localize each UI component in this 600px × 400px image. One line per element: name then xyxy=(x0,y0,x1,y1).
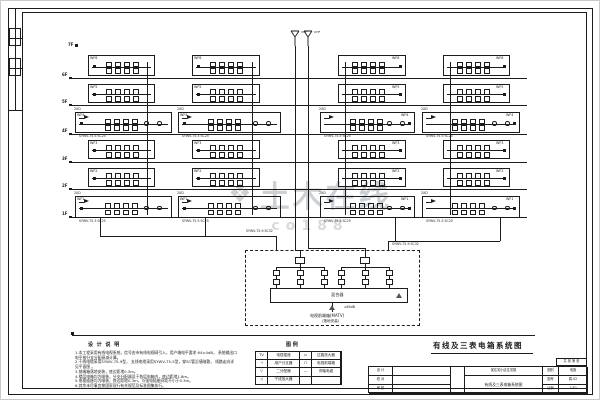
legend-symbol: TV xyxy=(256,352,268,360)
amplifier-icon xyxy=(187,199,192,203)
drawing-title: 有线及三表电箱系统图 xyxy=(433,342,523,350)
amplifier-label: 2XD xyxy=(319,192,326,195)
tv-outlet-icon xyxy=(132,119,138,132)
panel-label: WF2 xyxy=(392,170,399,173)
tv-outlet-icon xyxy=(466,62,472,75)
amp-in-line xyxy=(79,118,84,119)
tv-outlet-icon xyxy=(370,173,376,186)
tv-outlet-icon xyxy=(475,89,481,102)
panel-bus-line xyxy=(92,67,151,68)
floor-label: 6F xyxy=(62,73,68,77)
tap-icon xyxy=(408,122,411,125)
floor-tick xyxy=(69,77,72,80)
floor-label: 4F xyxy=(62,129,68,133)
tv-outlet-icon xyxy=(359,203,365,216)
tv-outlet-icon xyxy=(379,62,385,75)
tv-outlet-icon xyxy=(359,119,365,132)
tv-outlet-icon xyxy=(219,89,225,102)
tap-icon xyxy=(503,65,506,68)
notes-body: 1.本工程采用有线电视系统，信号由市有线电视网引入，用户端电平要求 64±4dB… xyxy=(75,351,237,389)
legend-symbol xyxy=(300,377,312,385)
panel-label: WF5 xyxy=(496,86,503,89)
splitter-circle-icon xyxy=(253,206,258,211)
tv-outlet-icon xyxy=(210,89,216,102)
tv-outlet-icon xyxy=(379,145,385,158)
floor-bus-line xyxy=(70,78,527,79)
tv-outlet-icon xyxy=(124,62,130,75)
mixer-triangle-icon xyxy=(396,293,402,298)
tv-outlet-icon xyxy=(105,203,111,216)
tap-icon xyxy=(183,122,186,125)
antenna-icon xyxy=(303,30,313,46)
tv-outlet-icon xyxy=(370,89,376,102)
notes-header: 设 计 说 明 xyxy=(88,343,120,348)
tv-outlet-icon xyxy=(114,119,120,132)
tv-outlet-icon xyxy=(228,62,234,75)
tap-icon xyxy=(93,177,96,180)
tap-icon xyxy=(80,122,83,125)
floor-bus-line xyxy=(70,189,527,190)
tap-icon xyxy=(513,207,516,210)
legend-symbol: — xyxy=(300,368,312,376)
drawing-title-underline xyxy=(431,353,533,354)
tap-icon xyxy=(513,122,516,125)
panel-label: WF2 xyxy=(496,170,503,173)
floor-bus-line xyxy=(70,105,527,106)
tv-outlet-icon xyxy=(237,62,243,75)
riser-line xyxy=(388,241,389,250)
headend-amp-box xyxy=(360,257,370,264)
panel-bus-line xyxy=(92,150,151,151)
titleblock-role-label: 设 计 xyxy=(369,367,393,376)
panel-label: WF2 xyxy=(194,170,201,173)
headend-caption: (落地安装) xyxy=(322,320,339,324)
panel-label: WF6 xyxy=(496,57,503,60)
amplifier-label: 2XD xyxy=(74,192,81,195)
panel-label: WF6 xyxy=(194,57,201,60)
tv-outlet-icon xyxy=(208,119,214,132)
amp-in-line xyxy=(182,202,187,203)
tv-outlet-icon xyxy=(377,203,383,216)
panel-label: WF3 xyxy=(194,142,201,145)
floor-label: 5F xyxy=(62,100,68,104)
tv-outlet-icon xyxy=(210,173,216,186)
riser-line xyxy=(72,335,535,336)
titleblock-meta-label: 比例 xyxy=(543,385,559,394)
tv-outlet-icon xyxy=(235,119,241,132)
tv-outlet-icon xyxy=(466,89,472,102)
tv-outlet-icon xyxy=(470,203,476,216)
legend-symbol: ⊓ xyxy=(300,360,312,368)
legend-name: 干线放大器 xyxy=(268,377,300,385)
tv-outlet-icon xyxy=(106,145,112,158)
tv-outlet-icon xyxy=(379,89,385,102)
tv-outlet-icon xyxy=(115,145,121,158)
tv-outlet-icon xyxy=(370,145,376,158)
riser-line xyxy=(295,46,296,250)
amplifier-icon xyxy=(84,199,89,203)
titleblock-project: 某住宅小区住宅楼 xyxy=(465,367,543,376)
titleblock-role-value xyxy=(393,376,451,385)
legend-table: TV电视插座▭过路放大器⊣用户分支器⊓电视前端箱▽二分配器—同轴电缆◁干线放大器 xyxy=(255,351,342,385)
tap-icon xyxy=(80,207,83,210)
panel-label: WF6 xyxy=(392,57,399,60)
panel-bus-line xyxy=(196,150,256,151)
tv-outlet-icon xyxy=(219,145,225,158)
tap-icon xyxy=(399,177,402,180)
legend-header: 图 例 xyxy=(286,343,298,348)
titleblock-role-label: 校 对 xyxy=(369,376,393,385)
panel-label: WF3 xyxy=(392,142,399,145)
tv-outlet-icon xyxy=(461,119,467,132)
tv-outlet-icon xyxy=(228,173,234,186)
tv-outlet-icon xyxy=(219,62,225,75)
tv-outlet-icon xyxy=(235,203,241,216)
riser-line xyxy=(500,218,501,241)
tv-outlet-icon xyxy=(377,119,383,132)
tv-outlet-icon xyxy=(352,62,358,75)
tv-outlet-icon xyxy=(484,173,490,186)
tv-outlet-icon xyxy=(106,62,112,75)
floor-label: 3F xyxy=(62,157,68,161)
tv-outlet-icon xyxy=(479,203,485,216)
tap-icon xyxy=(93,149,96,152)
floor-tick xyxy=(69,133,72,136)
note-line: 6.其余未尽事宜按国家现行有关规范及标准图集执行。 xyxy=(75,384,237,389)
panel-label: WF4 xyxy=(401,114,408,117)
amplifier-icon xyxy=(84,115,89,119)
tv-outlet-icon xyxy=(370,62,376,75)
tv-outlet-icon xyxy=(210,145,216,158)
headend-side-label: ≥60dB xyxy=(344,306,355,309)
tv-outlet-icon xyxy=(368,203,374,216)
legend-symbol: ▭ xyxy=(300,352,312,360)
tv-outlet-icon xyxy=(115,173,121,186)
tv-outlet-icon xyxy=(379,173,385,186)
tv-outlet-icon xyxy=(361,62,367,75)
legend-name: 过路放大器 xyxy=(312,352,341,360)
titleblock-meta-value: 弱-02 xyxy=(559,376,588,385)
splitter-circle-icon xyxy=(157,121,162,126)
amplifier-label: 2XD xyxy=(421,192,428,195)
tv-outlet-icon xyxy=(105,119,111,132)
tv-outlet-icon xyxy=(350,119,356,132)
tv-outlet-icon xyxy=(484,145,490,158)
tv-outlet-icon xyxy=(457,145,463,158)
distribution-panel-box xyxy=(88,55,155,76)
amp-in-line xyxy=(324,202,329,203)
riser-line xyxy=(308,46,309,248)
amplifier-icon xyxy=(329,115,334,119)
tv-outlet-icon xyxy=(237,173,243,186)
tv-outlet-icon xyxy=(452,203,458,216)
titleblock-meta-value: 1:50 xyxy=(559,385,588,394)
panel-label: WF5 xyxy=(392,86,399,89)
cable-spec-label: SYWV-75-5 SC25 xyxy=(79,220,106,223)
panel-label: WF1 xyxy=(506,198,513,201)
splitter-circle-icon xyxy=(157,206,162,211)
riser-line xyxy=(276,236,277,250)
tv-outlet-icon xyxy=(479,119,485,132)
titleblock-meta-label: 图号 xyxy=(543,376,559,385)
headend-amp-box xyxy=(295,257,305,264)
cable-spec-label: SYWV-75-5 SC25 xyxy=(324,220,351,223)
legend-symbol: ⊣ xyxy=(256,360,268,368)
splitter-circle-icon xyxy=(266,121,271,126)
amplifier-label: 2XD xyxy=(421,108,428,111)
floor-bus-line xyxy=(70,134,527,135)
splitter-circle-icon xyxy=(492,121,497,126)
tap-icon xyxy=(93,93,96,96)
legend-name: 电视前端箱 xyxy=(312,360,341,368)
tv-outlet-icon xyxy=(226,203,232,216)
panel-bus-line xyxy=(92,94,151,95)
tap-icon xyxy=(399,65,402,68)
splitter-circle-icon xyxy=(144,206,149,211)
floor-label: 2F xyxy=(62,184,68,188)
titleblock-spacer xyxy=(451,367,465,394)
panel-bus-line xyxy=(196,94,256,95)
panel-label: WF5 xyxy=(90,86,97,89)
panel-label: WF2 xyxy=(90,170,97,173)
tv-outlet-icon xyxy=(228,89,234,102)
tv-outlet-icon xyxy=(133,89,139,102)
splitter-circle-icon xyxy=(492,206,497,211)
panel-bus-line xyxy=(196,67,256,68)
tap-icon xyxy=(399,149,402,152)
tv-outlet-icon xyxy=(461,203,467,216)
legend-symbol: ◁ xyxy=(256,377,268,385)
tv-outlet-icon xyxy=(106,89,112,102)
amplifier-icon xyxy=(329,199,334,203)
antenna-label: UHF xyxy=(314,31,320,34)
amplifier-icon xyxy=(431,199,436,203)
panel-bus-line xyxy=(92,178,151,179)
tv-outlet-icon xyxy=(457,173,463,186)
titleblock-role-value xyxy=(393,367,451,376)
tap-icon xyxy=(503,93,506,96)
tap-icon xyxy=(183,207,186,210)
tv-outlet-icon xyxy=(106,173,112,186)
tv-outlet-icon xyxy=(352,89,358,102)
tv-outlet-icon xyxy=(217,203,223,216)
tv-outlet-icon xyxy=(457,62,463,75)
tv-outlet-icon xyxy=(217,119,223,132)
tv-outlet-icon xyxy=(124,145,130,158)
binding-strip-bottom xyxy=(8,110,22,111)
tv-outlet-icon xyxy=(484,89,490,102)
legend-name: 用户分支器 xyxy=(268,360,300,368)
floor-tick xyxy=(69,104,72,107)
splitter-circle-icon xyxy=(387,121,392,126)
tv-outlet-icon xyxy=(475,145,481,158)
tv-outlet-icon xyxy=(115,62,121,75)
cable-spec-label: SYWV-75-5 SC25 xyxy=(182,135,209,138)
mixer-label: 混合器 xyxy=(331,293,344,297)
titleblock-meta-value: 电施 xyxy=(559,367,588,376)
tv-outlet-icon xyxy=(466,145,472,158)
signoff-table xyxy=(9,28,21,46)
watermark-subtext: co188 xyxy=(195,218,425,234)
tv-outlet-icon xyxy=(361,89,367,102)
tv-outlet-icon xyxy=(350,203,356,216)
tv-outlet-icon xyxy=(452,119,458,132)
tv-outlet-icon xyxy=(361,145,367,158)
headend-caption: 电视前端箱(MATV) xyxy=(310,314,344,318)
splitter-circle-icon xyxy=(505,206,510,211)
cable-spec-label: SYWV-75-5 SC25 xyxy=(79,135,106,138)
panel-label: WF4 xyxy=(506,114,513,117)
riser-line xyxy=(100,236,276,237)
legend-name: 电视插座 xyxy=(268,352,300,360)
titleblock-meta-label: 图别 xyxy=(543,367,559,376)
splitter-circle-icon xyxy=(400,121,405,126)
ground-tick xyxy=(71,332,74,335)
titleblock-role-label: 审 核 xyxy=(369,385,393,394)
tv-outlet-icon xyxy=(352,173,358,186)
floor-tick xyxy=(69,216,72,219)
floor-bus-line xyxy=(70,162,527,163)
cable-spec-label: SYWV-75-5 SC25 xyxy=(324,135,351,138)
tv-outlet-icon xyxy=(352,145,358,158)
amp-in-line xyxy=(324,118,329,119)
tv-outlet-icon xyxy=(466,173,472,186)
tv-outlet-icon xyxy=(484,62,490,75)
titleblock-role-value xyxy=(393,385,451,394)
amplifier-label: 2XD xyxy=(74,108,81,111)
floor-tick xyxy=(75,44,78,47)
amplifier-icon xyxy=(431,115,436,119)
splitter-circle-icon xyxy=(387,206,392,211)
amp-in-line xyxy=(426,118,431,119)
tv-outlet-icon xyxy=(368,119,374,132)
cable-spec-label: SYWV-75-9 SC32 xyxy=(392,243,419,246)
tv-outlet-icon xyxy=(208,203,214,216)
tv-outlet-icon xyxy=(115,89,121,102)
legend-name xyxy=(312,377,341,385)
tv-outlet-icon xyxy=(133,62,139,75)
titleblock-drawing-name: 有线及三表电箱系统图 xyxy=(465,376,543,394)
amplifier-label: 2XD xyxy=(177,108,184,111)
tv-outlet-icon xyxy=(361,173,367,186)
tv-outlet-icon xyxy=(470,119,476,132)
tv-outlet-icon xyxy=(124,173,130,186)
title-block: 设 计校 对审 核某住宅小区住宅楼有线及三表电箱系统图图别电施图号弱-02比例1… xyxy=(368,366,587,393)
tap-icon xyxy=(399,93,402,96)
splitter-circle-icon xyxy=(253,121,258,126)
floor-label: 7F xyxy=(68,43,74,47)
amplifier-label: 2XD xyxy=(319,108,326,111)
panel-label: WF3 xyxy=(496,142,503,145)
cable-spec-label: SYWV-75-5 SC25 xyxy=(182,220,209,223)
amplifier-label: 2XD xyxy=(177,192,184,195)
splitter-circle-icon xyxy=(505,121,510,126)
tv-outlet-icon xyxy=(228,145,234,158)
tv-outlet-icon xyxy=(132,203,138,216)
tv-outlet-icon xyxy=(219,173,225,186)
cable-spec-label: SYWV-75-5 SC25 xyxy=(426,220,453,223)
splitter-circle-icon xyxy=(400,206,405,211)
tap-icon xyxy=(197,93,200,96)
panel-label: WF5 xyxy=(194,86,201,89)
panel-bus-line xyxy=(196,178,256,179)
title-block-corner: 共 张 第 张 xyxy=(556,358,587,366)
tv-outlet-icon xyxy=(475,173,481,186)
cable-spec-label: SYWV-75-5 SC25 xyxy=(426,135,453,138)
tap-icon xyxy=(503,177,506,180)
cable-spec-label: SYWV-75-9 SC32 xyxy=(246,230,273,233)
tv-outlet-icon xyxy=(210,62,216,75)
panel-label: WF3 xyxy=(90,142,97,145)
signoff-table xyxy=(9,58,21,76)
amplifier-icon xyxy=(187,115,192,119)
tv-outlet-icon xyxy=(133,145,139,158)
splitter-circle-icon xyxy=(266,206,271,211)
tap-icon xyxy=(503,149,506,152)
riser-line xyxy=(395,218,396,241)
distribution-panel-box xyxy=(192,55,260,76)
panel-label: WF6 xyxy=(90,57,97,60)
tap-icon xyxy=(197,65,200,68)
legend-name: 二分配器 xyxy=(268,368,300,376)
tv-outlet-icon xyxy=(237,89,243,102)
tap-icon xyxy=(197,177,200,180)
tv-outlet-icon xyxy=(133,173,139,186)
floor-tick xyxy=(69,161,72,164)
riser-line xyxy=(308,248,365,249)
tv-outlet-icon xyxy=(457,89,463,102)
panel-label: WF1 xyxy=(401,198,408,201)
tv-outlet-icon xyxy=(114,203,120,216)
legend-name: 同轴电缆 xyxy=(312,368,341,376)
input-triangle-icon xyxy=(329,305,335,310)
tv-outlet-icon xyxy=(475,62,481,75)
amp-in-line xyxy=(79,202,84,203)
splitter-circle-icon xyxy=(144,121,149,126)
floor-tick xyxy=(69,188,72,191)
tv-outlet-icon xyxy=(124,89,130,102)
amp-in-line xyxy=(182,118,187,119)
legend-symbol: ▽ xyxy=(256,368,268,376)
tv-outlet-icon xyxy=(237,145,243,158)
tap-icon xyxy=(408,207,411,210)
tv-outlet-icon xyxy=(226,119,232,132)
tap-icon xyxy=(93,65,96,68)
tv-outlet-icon xyxy=(123,203,129,216)
antenna-icon xyxy=(290,30,300,46)
amp-in-line xyxy=(426,202,431,203)
floor-label: 1F xyxy=(62,212,68,216)
tv-outlet-icon xyxy=(123,119,129,132)
tap-icon xyxy=(197,149,200,152)
